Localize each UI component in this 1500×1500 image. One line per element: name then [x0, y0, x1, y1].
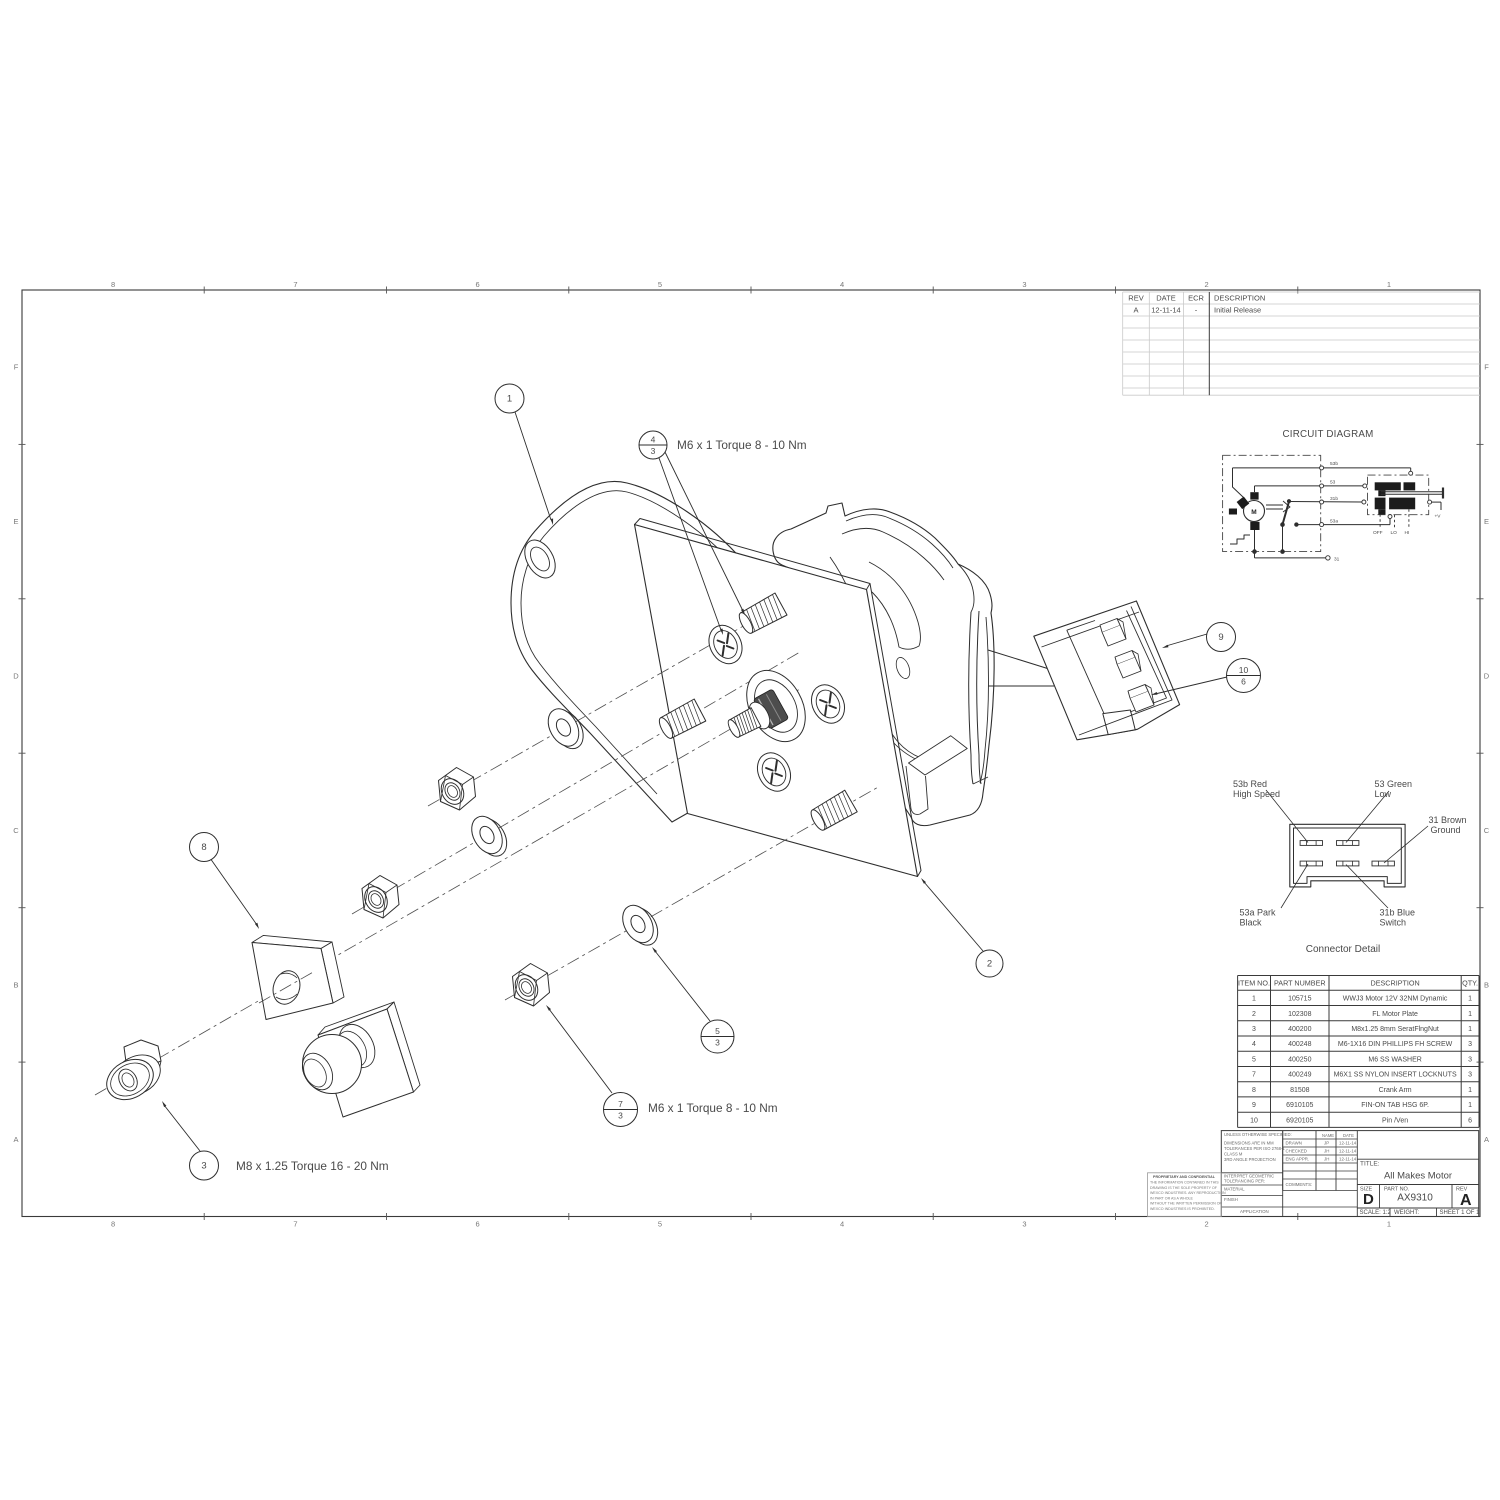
- svg-text:SCALE: 1:2: SCALE: 1:2: [1360, 1210, 1392, 1216]
- svg-text:Low: Low: [1375, 789, 1392, 799]
- svg-text:Connector Detail: Connector Detail: [1306, 944, 1380, 955]
- svg-text:COMMENTS:: COMMENTS:: [1286, 1182, 1313, 1187]
- svg-text:3: 3: [1468, 1072, 1472, 1079]
- svg-text:4: 4: [840, 1220, 844, 1229]
- svg-text:400248: 400248: [1288, 1041, 1311, 1048]
- svg-text:THE INFORMATION CONTAINED IN T: THE INFORMATION CONTAINED IN THIS: [1150, 1181, 1219, 1185]
- svg-text:3: 3: [1252, 1026, 1256, 1033]
- svg-text:3RD ANGLE PROJECTION: 3RD ANGLE PROJECTION: [1224, 1157, 1276, 1162]
- svg-text:D: D: [1484, 672, 1490, 681]
- svg-text:SHEET 1 OF 1: SHEET 1 OF 1: [1440, 1210, 1481, 1216]
- svg-text:31 Brown: 31 Brown: [1429, 815, 1467, 825]
- svg-text:A: A: [1133, 306, 1138, 315]
- svg-text:C: C: [13, 826, 19, 835]
- svg-text:1: 1: [1387, 1220, 1391, 1229]
- svg-text:ECR: ECR: [1188, 294, 1204, 303]
- svg-text:53a: 53a: [1330, 519, 1338, 525]
- svg-text:A: A: [1484, 1135, 1489, 1144]
- svg-text:53b: 53b: [1330, 461, 1338, 467]
- svg-text:2: 2: [987, 959, 992, 970]
- svg-text:9: 9: [1252, 1102, 1256, 1109]
- svg-text:3: 3: [1022, 1220, 1026, 1229]
- svg-text:2: 2: [1252, 1011, 1256, 1018]
- svg-text:B: B: [1484, 980, 1489, 989]
- svg-text:8: 8: [111, 1220, 115, 1229]
- svg-text:1: 1: [1468, 1026, 1472, 1033]
- svg-text:81508: 81508: [1290, 1087, 1310, 1094]
- svg-text:M6 x 1 Torque 8 - 10 Nm: M6 x 1 Torque 8 - 10 Nm: [648, 1101, 778, 1115]
- svg-text:102308: 102308: [1288, 1011, 1311, 1018]
- svg-text:5: 5: [715, 1026, 720, 1036]
- svg-text:M6-1X16 DIN PHILLIPS FH SCREW: M6-1X16 DIN PHILLIPS FH SCREW: [1338, 1041, 1453, 1048]
- svg-text:DATE: DATE: [1343, 1133, 1354, 1138]
- svg-text:NAME: NAME: [1322, 1133, 1334, 1138]
- svg-text:WEXCO INDUSTRIES IS PROHIBITED: WEXCO INDUSTRIES IS PROHIBITED.: [1150, 1207, 1215, 1211]
- svg-text:E: E: [1484, 517, 1489, 526]
- svg-text:1: 1: [1252, 996, 1256, 1003]
- svg-text:53 Green: 53 Green: [1375, 779, 1413, 789]
- svg-text:400250: 400250: [1288, 1056, 1311, 1063]
- svg-text:1: 1: [1468, 1102, 1472, 1109]
- svg-text:7: 7: [293, 1220, 297, 1229]
- svg-text:6920105: 6920105: [1286, 1117, 1313, 1124]
- svg-text:C: C: [1484, 826, 1490, 835]
- svg-text:6: 6: [1468, 1117, 1472, 1124]
- svg-text:UNLESS OTHERWISE SPECIFIED:: UNLESS OTHERWISE SPECIFIED:: [1224, 1132, 1292, 1137]
- svg-text:8: 8: [111, 280, 115, 289]
- svg-text:AX9310: AX9310: [1397, 1193, 1433, 1204]
- svg-text:High Speed: High Speed: [1233, 789, 1280, 799]
- svg-text:A: A: [1460, 1192, 1472, 1209]
- svg-text:D: D: [1363, 1191, 1374, 1208]
- svg-text:4: 4: [840, 280, 844, 289]
- svg-text:CLASS M: CLASS M: [1224, 1152, 1243, 1157]
- svg-text:+V: +V: [1435, 514, 1442, 520]
- svg-text:OFF: OFF: [1373, 530, 1383, 536]
- svg-text:E: E: [13, 517, 18, 526]
- svg-text:FINISH: FINISH: [1224, 1197, 1238, 1202]
- svg-text:DESCRIPTION: DESCRIPTION: [1371, 979, 1420, 988]
- svg-text:WEIGHT:: WEIGHT:: [1394, 1210, 1419, 1216]
- svg-text:12-11-14: 12-11-14: [1151, 306, 1180, 315]
- svg-text:7: 7: [1252, 1072, 1256, 1079]
- svg-text:31b: 31b: [1330, 496, 1338, 502]
- svg-text:400200: 400200: [1288, 1026, 1311, 1033]
- svg-text:M6X1 SS NYLON INSERT LOCKNUTS: M6X1 SS NYLON INSERT LOCKNUTS: [1334, 1072, 1457, 1079]
- svg-text:ENG APPR.: ENG APPR.: [1286, 1157, 1310, 1162]
- svg-text:WEXCO INDUSTRIES. ANY REPRODU: WEXCO INDUSTRIES. ANY REPRODUCTION: [1150, 1191, 1226, 1195]
- svg-text:CIRCUIT DIAGRAM: CIRCUIT DIAGRAM: [1283, 429, 1374, 440]
- svg-text:IN PART OR AS A WHOLE: IN PART OR AS A WHOLE: [1150, 1196, 1194, 1200]
- svg-text:HI: HI: [1405, 530, 1410, 536]
- svg-text:CHECKED: CHECKED: [1286, 1149, 1307, 1154]
- svg-text:JP: JP: [1324, 1141, 1329, 1146]
- svg-text:F: F: [1484, 363, 1489, 372]
- svg-text:6: 6: [476, 1220, 480, 1229]
- svg-text:QTY.: QTY.: [1462, 979, 1478, 988]
- svg-text:3: 3: [1022, 280, 1026, 289]
- svg-text:2: 2: [1205, 1220, 1209, 1229]
- svg-text:B: B: [13, 980, 18, 989]
- svg-text:DESCRIPTION: DESCRIPTION: [1214, 294, 1265, 303]
- svg-text:2: 2: [1205, 280, 1209, 289]
- svg-text:8: 8: [201, 842, 206, 853]
- svg-text:WITHOUT THE WRITTEN PERMISSION: WITHOUT THE WRITTEN PERMISSION OF: [1150, 1202, 1223, 1206]
- svg-text:6910105: 6910105: [1286, 1102, 1313, 1109]
- svg-text:12-11-14: 12-11-14: [1339, 1157, 1357, 1162]
- svg-text:8: 8: [1252, 1087, 1256, 1094]
- svg-text:3: 3: [715, 1038, 720, 1048]
- svg-text:APPLICATION: APPLICATION: [1240, 1209, 1269, 1214]
- svg-text:LO: LO: [1391, 530, 1398, 536]
- svg-text:F: F: [14, 363, 19, 372]
- svg-text:53a Park: 53a Park: [1240, 908, 1277, 918]
- svg-text:6: 6: [476, 280, 480, 289]
- svg-text:REV: REV: [1128, 294, 1143, 303]
- svg-text:12-11-14: 12-11-14: [1339, 1149, 1357, 1154]
- svg-text:DATE: DATE: [1156, 294, 1175, 303]
- svg-text:WWJ3 Motor 12V 32NM Dynamic: WWJ3 Motor 12V 32NM Dynamic: [1343, 996, 1448, 1003]
- svg-text:TOLERANCES PER ISO 2768-1: TOLERANCES PER ISO 2768-1: [1224, 1146, 1285, 1151]
- svg-text:M8x1.25 8mm SeratFlngNut: M8x1.25 8mm SeratFlngNut: [1351, 1026, 1439, 1033]
- svg-text:5: 5: [1252, 1056, 1256, 1063]
- svg-text:9: 9: [1218, 632, 1223, 643]
- svg-text:M: M: [1251, 509, 1256, 516]
- svg-text:PART NUMBER: PART NUMBER: [1274, 979, 1326, 988]
- svg-text:400249: 400249: [1288, 1072, 1311, 1079]
- svg-text:1: 1: [507, 394, 512, 405]
- svg-text:105715: 105715: [1288, 996, 1311, 1003]
- svg-text:31b Blue: 31b Blue: [1380, 908, 1416, 918]
- svg-text:M8 x 1.25 Torque 16 - 20 Nm: M8 x 1.25 Torque 16 - 20 Nm: [236, 1159, 389, 1173]
- svg-text:Switch: Switch: [1380, 918, 1407, 928]
- svg-text:Initial Release: Initial Release: [1214, 306, 1261, 315]
- svg-text:10: 10: [1239, 665, 1249, 675]
- svg-text:TOLERANCING PER:: TOLERANCING PER:: [1224, 1179, 1265, 1184]
- svg-text:TITLE:: TITLE:: [1360, 1161, 1380, 1168]
- svg-text:3: 3: [1468, 1041, 1472, 1048]
- svg-text:7: 7: [618, 1099, 623, 1109]
- svg-text:5: 5: [658, 1220, 662, 1229]
- svg-text:1: 1: [1468, 1087, 1472, 1094]
- svg-text:ITEM NO.: ITEM NO.: [1238, 979, 1270, 988]
- svg-text:1: 1: [1468, 1011, 1472, 1018]
- svg-text:Crank Arm: Crank Arm: [1379, 1087, 1412, 1094]
- svg-text:JH: JH: [1324, 1149, 1329, 1154]
- svg-text:M6 SS WASHER: M6 SS WASHER: [1368, 1056, 1421, 1063]
- svg-text:1: 1: [1468, 996, 1472, 1003]
- svg-text:6: 6: [1241, 677, 1246, 687]
- svg-text:3: 3: [201, 1161, 206, 1172]
- svg-text:All Makes Motor: All Makes Motor: [1384, 1171, 1452, 1182]
- svg-text:JH: JH: [1324, 1157, 1329, 1162]
- svg-text:MATERIAL: MATERIAL: [1224, 1187, 1245, 1192]
- svg-text:12-11-14: 12-11-14: [1339, 1141, 1357, 1146]
- svg-text:53b Red: 53b Red: [1233, 779, 1267, 789]
- svg-text:5: 5: [658, 280, 662, 289]
- svg-text:FIN-ON TAB HSG 6P.: FIN-ON TAB HSG 6P.: [1361, 1102, 1429, 1109]
- svg-text:M6 x 1 Torque 8 - 10 Nm: M6 x 1 Torque 8 - 10 Nm: [677, 438, 807, 452]
- svg-text:Pin /Ven: Pin /Ven: [1382, 1117, 1408, 1124]
- svg-text:DRAWN: DRAWN: [1286, 1141, 1302, 1146]
- svg-text:A: A: [13, 1135, 18, 1144]
- svg-text:DIMENSIONS ARE IN MM: DIMENSIONS ARE IN MM: [1224, 1141, 1274, 1146]
- svg-text:7: 7: [293, 280, 297, 289]
- svg-text:31: 31: [1334, 557, 1340, 563]
- svg-text:PROPRIETARY AND CONFIDENTIAL: PROPRIETARY AND CONFIDENTIAL: [1153, 1175, 1216, 1179]
- svg-text:3: 3: [618, 1111, 623, 1121]
- svg-text:3: 3: [651, 446, 656, 456]
- svg-text:10: 10: [1250, 1117, 1258, 1124]
- svg-text:FL Motor Plate: FL Motor Plate: [1372, 1011, 1418, 1018]
- svg-text:Ground: Ground: [1431, 825, 1461, 835]
- svg-text:4: 4: [651, 435, 656, 445]
- svg-text:53: 53: [1330, 480, 1336, 486]
- svg-text:3: 3: [1468, 1056, 1472, 1063]
- svg-text:D: D: [13, 672, 19, 681]
- svg-text:DRAWING IS THE SOLE PROPERTY O: DRAWING IS THE SOLE PROPERTY OF: [1150, 1186, 1218, 1190]
- svg-text:Black: Black: [1240, 918, 1263, 928]
- svg-text:1: 1: [1387, 280, 1391, 289]
- svg-text:4: 4: [1252, 1041, 1256, 1048]
